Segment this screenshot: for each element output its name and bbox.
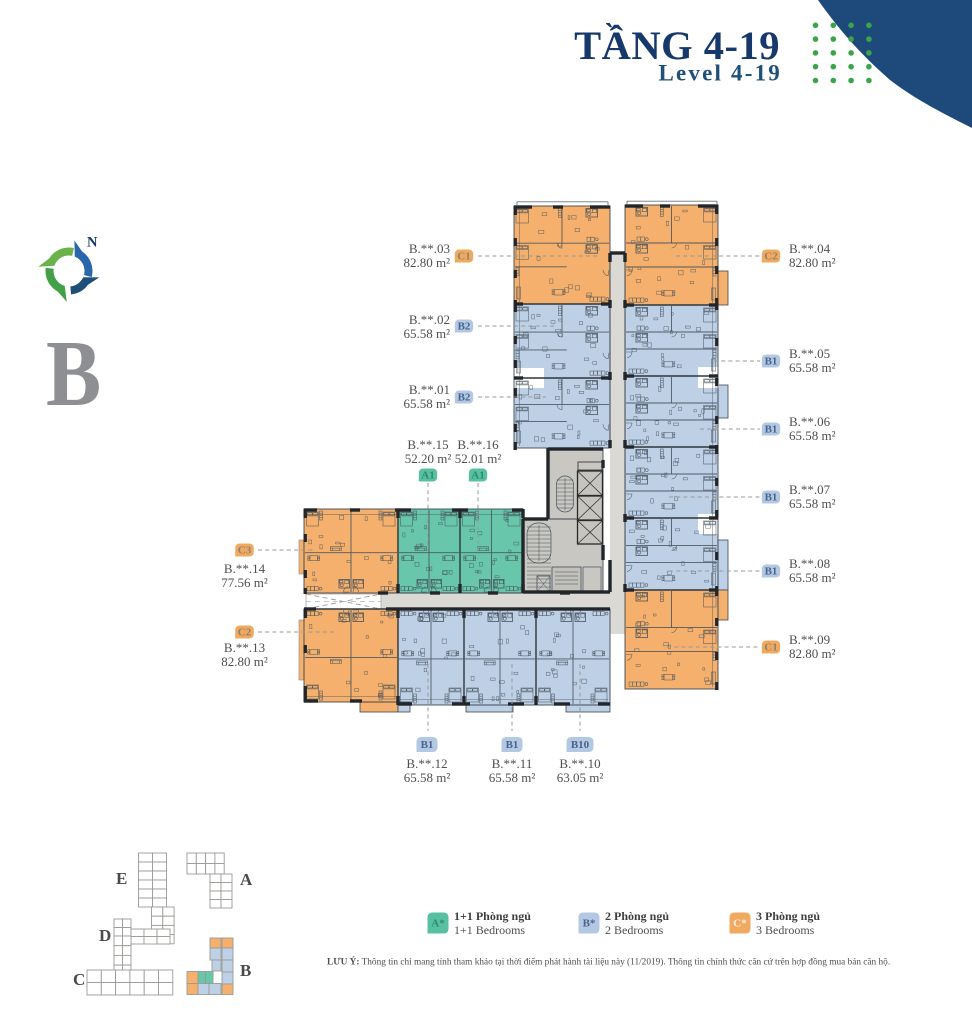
- svg-text:3 Bedrooms: 3 Bedrooms: [756, 923, 815, 937]
- svg-text:A1: A1: [421, 470, 434, 482]
- svg-text:E: E: [116, 869, 127, 888]
- svg-text:B1: B1: [765, 424, 778, 436]
- svg-text:77.56 m²: 77.56 m²: [221, 575, 268, 590]
- svg-text:C: C: [73, 970, 85, 989]
- svg-text:B.**.11: B.**.11: [492, 756, 533, 771]
- svg-text:B.**.01: B.**.01: [409, 382, 450, 397]
- svg-text:52.20 m²: 52.20 m²: [405, 451, 452, 466]
- svg-text:B.**.03: B.**.03: [409, 241, 450, 256]
- svg-text:B: B: [240, 961, 251, 980]
- svg-text:B.**.08: B.**.08: [789, 556, 830, 571]
- svg-text:B.**.07: B.**.07: [789, 482, 831, 497]
- svg-text:B.**.16: B.**.16: [457, 437, 499, 452]
- svg-text:B.**.05: B.**.05: [789, 346, 830, 361]
- svg-text:B.**.02: B.**.02: [409, 312, 450, 327]
- svg-text:C*: C*: [733, 918, 747, 930]
- svg-text:63.05 m²: 63.05 m²: [557, 770, 604, 785]
- svg-text:65.58 m²: 65.58 m²: [789, 360, 836, 375]
- svg-text:B1: B1: [765, 566, 778, 578]
- svg-text:B.**.06: B.**.06: [789, 414, 831, 429]
- svg-text:B.**.14: B.**.14: [224, 561, 266, 576]
- svg-text:B1: B1: [765, 492, 778, 504]
- svg-text:B.**.12: B.**.12: [406, 756, 447, 771]
- svg-text:B2: B2: [458, 321, 471, 333]
- svg-text:N: N: [87, 235, 98, 251]
- svg-text:C3: C3: [238, 545, 252, 557]
- svg-text:2 Phòng ngủ: 2 Phòng ngủ: [605, 909, 669, 923]
- svg-text:Level 4-19: Level 4-19: [658, 61, 782, 86]
- svg-text:2 Bedrooms: 2 Bedrooms: [605, 923, 664, 937]
- svg-text:B.**.15: B.**.15: [407, 437, 448, 452]
- svg-text:B.**.13: B.**.13: [224, 640, 265, 655]
- svg-text:B10: B10: [571, 739, 590, 751]
- svg-text:65.58 m²: 65.58 m²: [789, 496, 836, 511]
- svg-text:65.58 m²: 65.58 m²: [403, 326, 450, 341]
- svg-text:D: D: [99, 926, 111, 945]
- svg-text:B1: B1: [421, 739, 434, 751]
- svg-text:A: A: [240, 870, 253, 889]
- svg-text:C1: C1: [764, 642, 777, 654]
- svg-text:65.58 m²: 65.58 m²: [404, 770, 451, 785]
- svg-text:B.**.04: B.**.04: [789, 241, 831, 256]
- svg-text:82.80 m²: 82.80 m²: [403, 255, 450, 270]
- svg-text:82.80 m²: 82.80 m²: [221, 654, 268, 669]
- svg-text:A1: A1: [471, 470, 484, 482]
- svg-text:A*: A*: [431, 918, 445, 930]
- svg-text:65.58 m²: 65.58 m²: [489, 770, 536, 785]
- svg-text:B2: B2: [458, 392, 471, 404]
- svg-text:52.01 m²: 52.01 m²: [455, 451, 502, 466]
- svg-text:65.58 m²: 65.58 m²: [403, 396, 450, 411]
- svg-text:C2: C2: [764, 251, 778, 263]
- svg-text:1+1 Bedrooms: 1+1 Bedrooms: [454, 923, 525, 937]
- svg-text:B.**.10: B.**.10: [559, 756, 600, 771]
- svg-text:82.80 m²: 82.80 m²: [789, 255, 836, 270]
- svg-text:B.**.09: B.**.09: [789, 632, 830, 647]
- svg-text:1+1 Phòng ngủ: 1+1 Phòng ngủ: [454, 909, 531, 923]
- svg-text:B1: B1: [765, 356, 778, 368]
- svg-text:65.58 m²: 65.58 m²: [789, 570, 836, 585]
- svg-text:B*: B*: [583, 918, 596, 930]
- svg-text:65.58 m²: 65.58 m²: [789, 428, 836, 443]
- svg-text:B1: B1: [506, 739, 519, 751]
- svg-text:82.80 m²: 82.80 m²: [789, 646, 836, 661]
- svg-text:B: B: [46, 322, 101, 426]
- svg-text:3 Phòng ngủ: 3 Phòng ngủ: [756, 909, 820, 923]
- svg-text:LƯU Ý: Thông tin chỉ mang tính: LƯU Ý: Thông tin chỉ mang tính tham khảo…: [327, 956, 890, 968]
- svg-text:C1: C1: [457, 251, 470, 263]
- svg-text:C2: C2: [238, 627, 252, 639]
